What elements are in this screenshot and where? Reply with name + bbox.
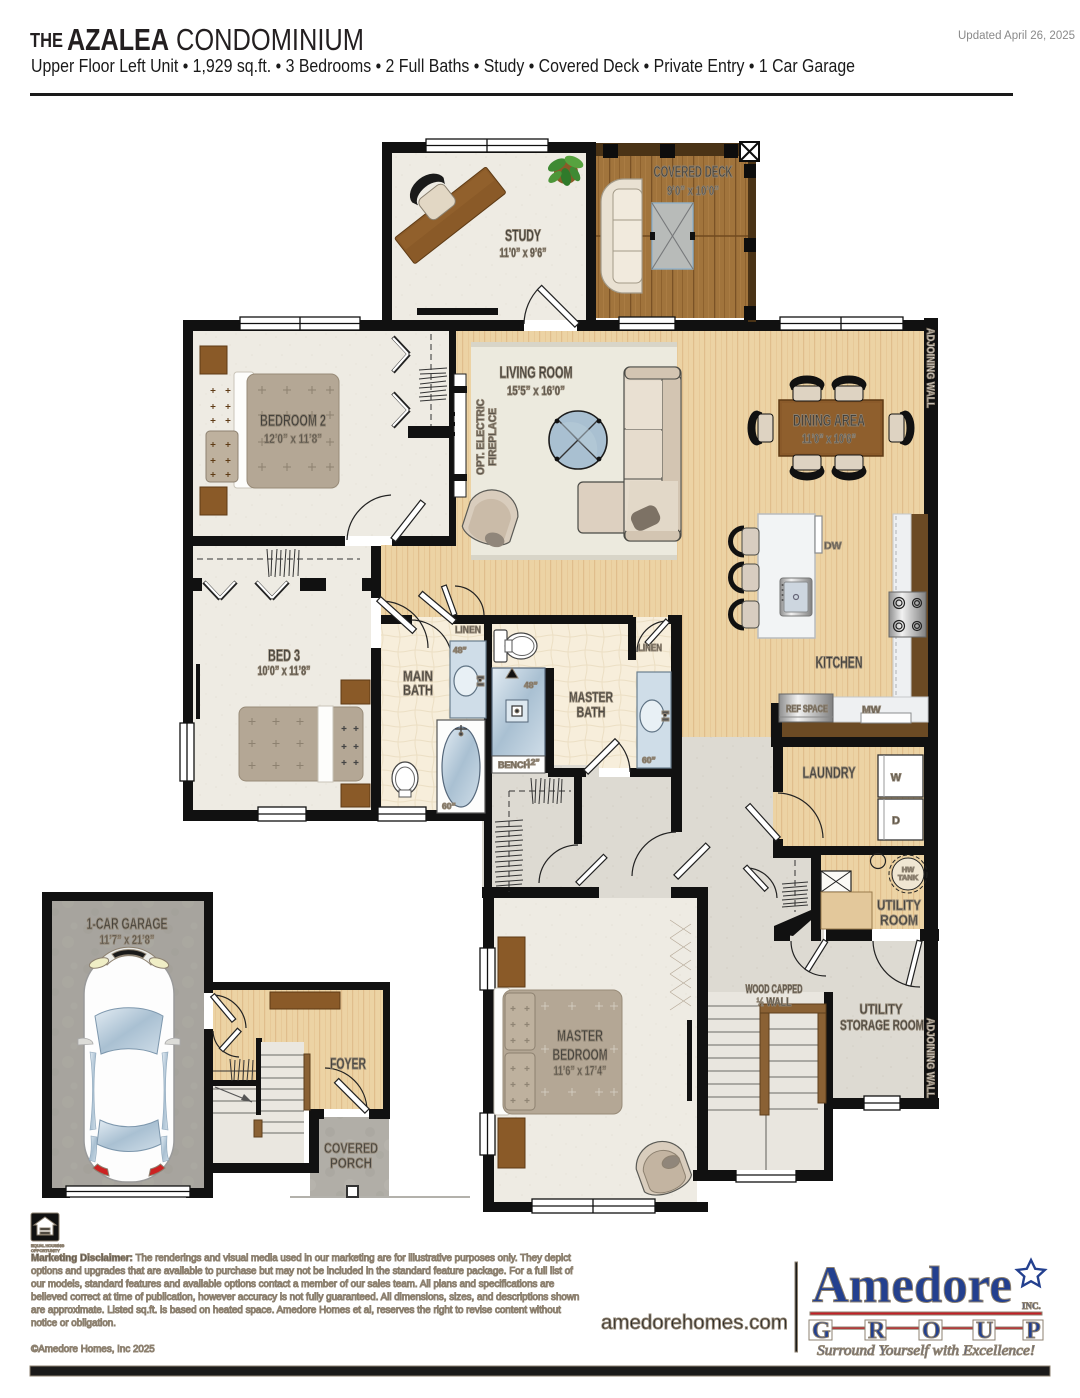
svg-text:©Amedore Homes, Inc 2025: ©Amedore Homes, Inc 2025 [31,1344,155,1355]
svg-text:60”: 60” [642,755,656,765]
svg-text:10’0” x 11’8”: 10’0” x 11’8” [258,663,311,678]
svg-text:11’0” x 10’6”: 11’0” x 10’6” [802,431,856,446]
svg-text:W: W [891,772,902,784]
svg-text:are approximate. Listed sq.ft.: are approximate. Listed sq.ft. is based … [31,1305,561,1316]
svg-text:TANK: TANK [898,873,919,882]
svg-text:believed correct at time of pu: believed correct at time of publication,… [31,1292,579,1303]
svg-text:1-CAR GARAGE: 1-CAR GARAGE [87,916,168,933]
svg-text:P: P [1026,1318,1041,1344]
svg-text:WOOD CAPPED: WOOD CAPPED [746,982,803,996]
svg-text:LINEN: LINEN [455,624,481,636]
svg-text:R: R [868,1318,886,1344]
svg-text:Marketing Disclaimer: The rend: Marketing Disclaimer: The renderings and… [31,1253,571,1264]
svg-text:UTILITY: UTILITY [877,898,921,914]
svg-text:ADJOINING WALL: ADJOINING WALL [924,1018,936,1098]
svg-text:COVERED: COVERED [324,1141,378,1157]
svg-text:MASTER: MASTER [557,1028,603,1045]
svg-text:11’6” x 17’4”: 11’6” x 17’4” [554,1064,607,1078]
svg-text:our models, standard features: our models, standard features and availa… [31,1279,555,1290]
svg-text:KITCHEN: KITCHEN [816,654,863,672]
svg-text:D: D [892,815,900,827]
svg-text:UTILITY: UTILITY [860,1002,903,1018]
svg-text:THE: THE [30,30,63,52]
svg-text:48”: 48” [453,645,467,655]
svg-text:MASTER: MASTER [569,690,613,706]
svg-text:15’5” x 16’0”: 15’5” x 16’0” [507,383,565,398]
svg-text:½ WALL: ½ WALL [757,995,792,1009]
svg-text:CONDOMINIUM: CONDOMINIUM [176,22,364,57]
svg-text:O: O [922,1318,941,1344]
svg-text:STORAGE ROOM: STORAGE ROOM [840,1018,924,1034]
svg-text:amedorehomes.com: amedorehomes.com [601,1311,788,1334]
svg-text:G: G [812,1318,831,1344]
svg-text:BATH: BATH [403,683,433,699]
svg-text:DW: DW [824,540,842,552]
svg-text:Upper Floor Left Unit • 1,929: Upper Floor Left Unit • 1,929 sq.ft. • 3… [31,55,855,76]
svg-text:12’0” x 11’8”: 12’0” x 11’8” [264,431,322,446]
svg-text:ADJOINING WALL: ADJOINING WALL [924,328,936,408]
svg-text:COVERED DECK: COVERED DECK [654,164,734,181]
svg-text:FOYER: FOYER [330,1056,366,1073]
svg-text:ROOM: ROOM [880,913,918,929]
svg-text:REF SPACE: REF SPACE [786,703,828,715]
svg-text:Updated April 26, 2025: Updated April 26, 2025 [958,30,1075,42]
svg-text:AZALEA: AZALEA [67,22,169,57]
svg-text:INC.: INC. [1022,1301,1041,1311]
svg-text:PORCH: PORCH [330,1156,372,1172]
svg-text:FIREPLACE: FIREPLACE [487,408,499,466]
svg-text:11’7” x 21’8”: 11’7” x 21’8” [100,933,155,947]
svg-text:60”: 60” [442,801,456,811]
svg-text:12”: 12” [526,757,540,767]
svg-text:OPT. ELECTRIC: OPT. ELECTRIC [475,399,487,475]
svg-text:options and upgrades that are: options and upgrades that are available … [31,1266,573,1277]
svg-text:U: U [976,1318,993,1344]
svg-text:Amedore: Amedore [812,1257,1012,1314]
svg-text:LINEN: LINEN [638,642,662,654]
svg-text:DINING AREA: DINING AREA [793,412,865,430]
svg-text:BATH: BATH [577,705,606,721]
svg-text:9’0” x 10’0”: 9’0” x 10’0” [667,184,719,198]
svg-text:11’0” x 9’6”: 11’0” x 9’6” [500,245,547,260]
svg-text:LIVING ROOM: LIVING ROOM [500,364,573,382]
svg-text:Surround Yourself with Excelle: Surround Yourself with Excellence! [817,1343,1035,1359]
svg-text:BEDROOM: BEDROOM [553,1047,608,1064]
svg-text:BEDROOM 2: BEDROOM 2 [260,412,326,430]
svg-text:STUDY: STUDY [505,227,541,245]
svg-text:notice or obligation.: notice or obligation. [31,1318,116,1329]
svg-text:MW: MW [862,704,881,716]
svg-text:LAUNDRY: LAUNDRY [803,765,856,782]
svg-text:48”: 48” [524,680,538,690]
